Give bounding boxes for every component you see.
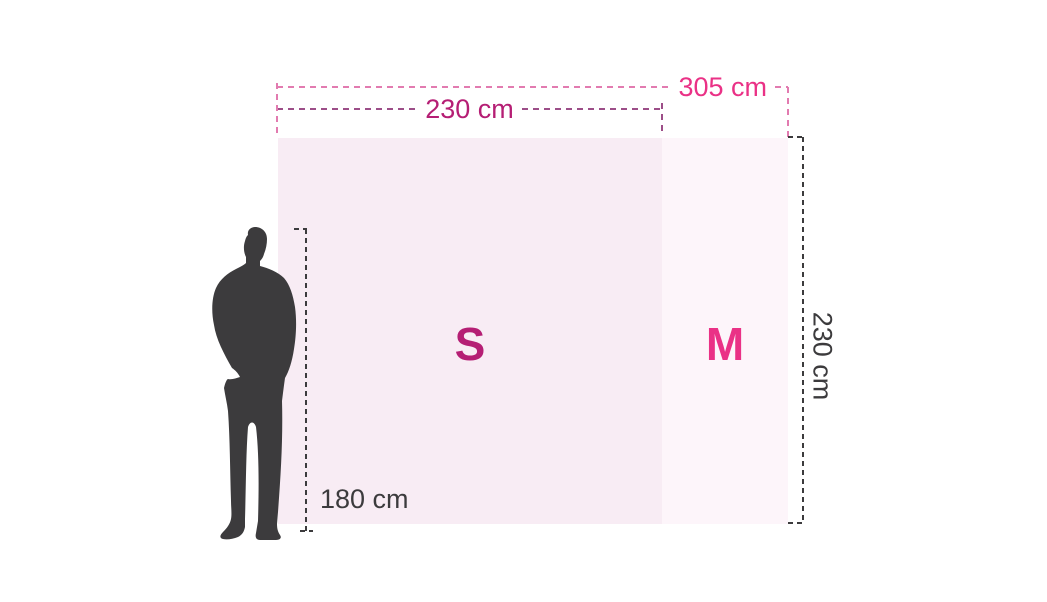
- measure-height-line: [802, 137, 804, 524]
- measure-tick-left: [276, 83, 278, 137]
- dashed-line-segment: [277, 108, 417, 110]
- dashed-line-segment: [277, 86, 670, 88]
- measure-height-tick-bottom: [788, 522, 803, 524]
- size-comparison-diagram: S M 305 cm 230 cm 230 cm 180 cm: [0, 0, 1047, 602]
- measure-tick-m-right: [787, 87, 789, 137]
- measure-height-tick-top: [788, 136, 803, 138]
- size-s-area: S: [278, 138, 662, 524]
- measure-s-width: 230 cm: [277, 95, 662, 123]
- person-silhouette-icon: [202, 227, 304, 542]
- size-m-area: M: [662, 138, 788, 524]
- person-height-line: [305, 229, 307, 532]
- total-width-label: 305 cm: [678, 74, 767, 101]
- measure-tick-s-right: [661, 103, 663, 135]
- size-s-label: S: [455, 295, 486, 367]
- dashed-line-segment: [522, 108, 662, 110]
- size-m-label: M: [706, 295, 744, 367]
- person-height-label: 180 cm: [320, 486, 409, 513]
- s-width-label: 230 cm: [425, 96, 514, 123]
- height-label: 230 cm: [809, 312, 836, 401]
